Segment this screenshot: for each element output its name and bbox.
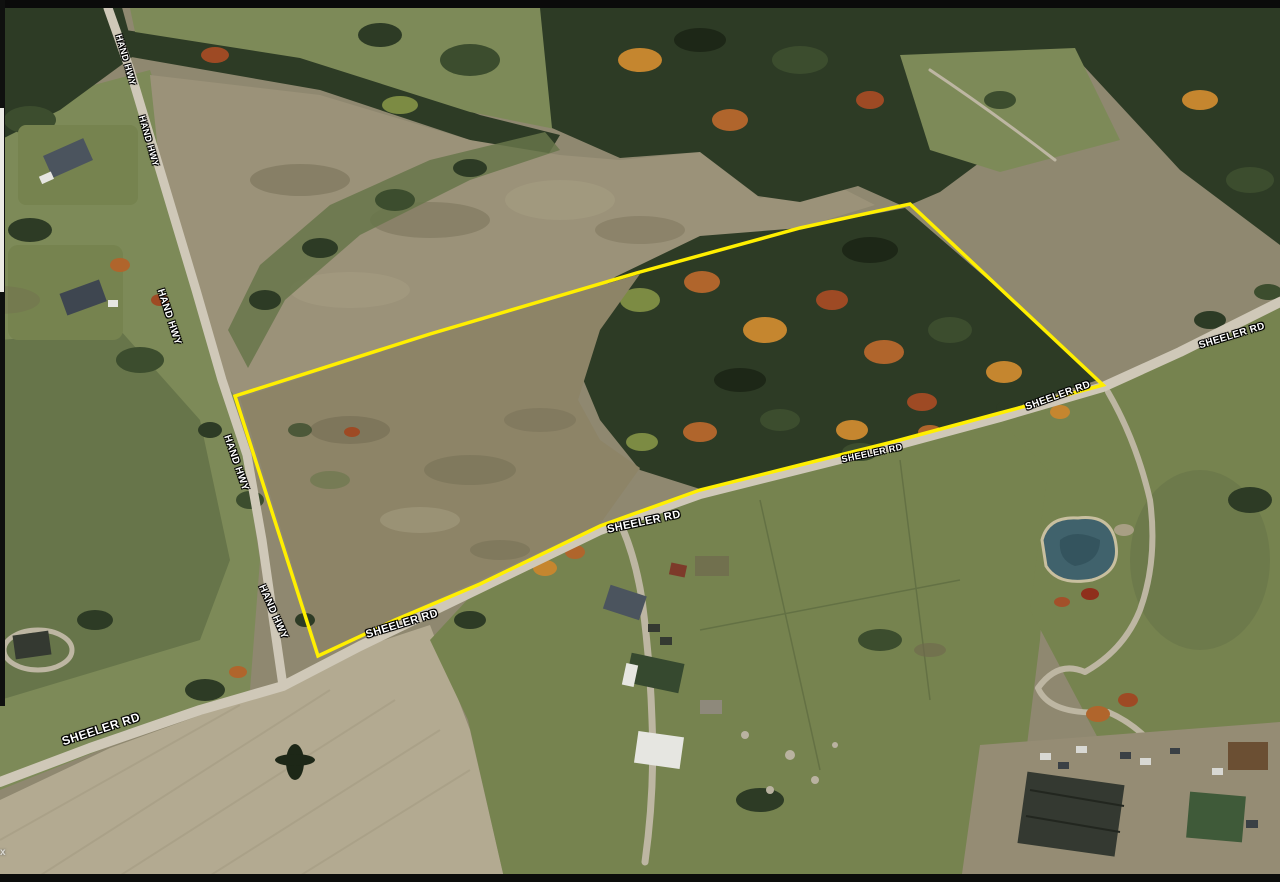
- aerial-map-canvas[interactable]: [0, 0, 1280, 882]
- large-building-roof: [1017, 772, 1124, 857]
- brown-building-roof: [1228, 742, 1268, 770]
- white-barn-roof: [634, 731, 684, 769]
- house-roof: [13, 631, 52, 660]
- aerial-map-screenshot: HAND HWYHAND HWYHAND HWYHAND HWYHAND HWY…: [0, 0, 1280, 882]
- green-roof-building: [1186, 792, 1246, 843]
- clipped-edge-text: x: [0, 847, 6, 858]
